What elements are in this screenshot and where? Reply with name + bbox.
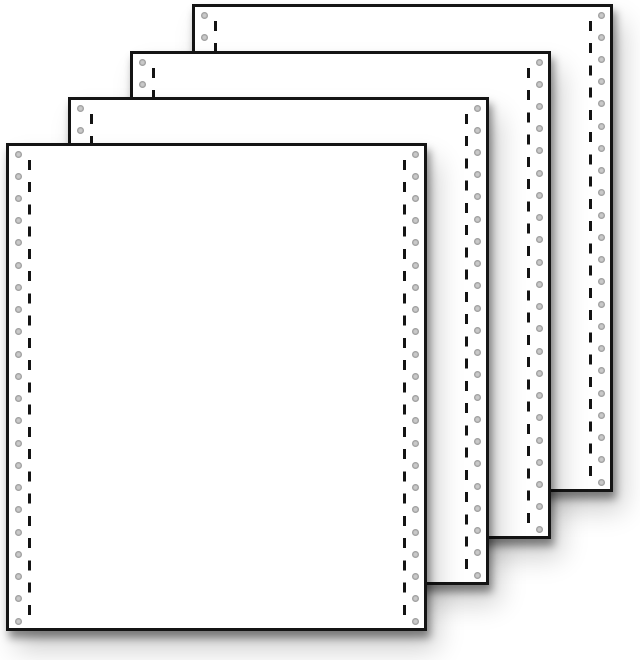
- sprocket-hole: [139, 81, 146, 88]
- sprocket-hole: [598, 167, 605, 174]
- sprocket-hole: [15, 395, 22, 402]
- sprocket-hole: [598, 367, 605, 374]
- sprocket-hole: [536, 125, 543, 132]
- perforation-line: [527, 68, 530, 528]
- sprocket-hole: [412, 217, 419, 224]
- sprocket-hole: [598, 412, 605, 419]
- sprocket-hole: [474, 105, 481, 112]
- sprocket-hole: [474, 505, 481, 512]
- sprocket-hole: [474, 349, 481, 356]
- sprocket-hole: [474, 149, 481, 156]
- sprocket-hole: [536, 370, 543, 377]
- sprocket-hole: [412, 306, 419, 313]
- sprocket-hole: [474, 327, 481, 334]
- perforation-line: [465, 114, 468, 574]
- sprocket-hole: [412, 573, 419, 580]
- sprocket-hole: [536, 147, 543, 154]
- sprocket-hole: [536, 481, 543, 488]
- sprocket-hole: [15, 373, 22, 380]
- paper-stack: [0, 0, 640, 660]
- sprocket-hole: [598, 78, 605, 85]
- sprocket-hole: [15, 306, 22, 313]
- sprocket-hole: [598, 145, 605, 152]
- sprocket-hole: [474, 527, 481, 534]
- sprocket-hole: [598, 278, 605, 285]
- sprocket-hole: [15, 328, 22, 335]
- sprocket-hole: [15, 506, 22, 513]
- sprocket-hole: [15, 262, 22, 269]
- sprocket-hole: [474, 438, 481, 445]
- sprocket-hole: [474, 260, 481, 267]
- sprocket-hole: [139, 59, 146, 66]
- sprocket-hole: [201, 12, 208, 19]
- sprocket-hole: [598, 456, 605, 463]
- sprocket-hole: [15, 239, 22, 246]
- sprocket-hole: [536, 103, 543, 110]
- sprocket-hole: [15, 595, 22, 602]
- sprocket-hole: [536, 414, 543, 421]
- sprocket-hole: [412, 551, 419, 558]
- paper-sheet: [6, 143, 427, 631]
- sprocket-hole: [536, 214, 543, 221]
- perforation-line: [589, 21, 592, 481]
- sprocket-hole: [474, 549, 481, 556]
- sprocket-hole: [536, 348, 543, 355]
- sprocket-hole: [474, 572, 481, 579]
- sprocket-hole: [15, 618, 22, 625]
- sprocket-hole: [412, 284, 419, 291]
- sprocket-hole: [474, 416, 481, 423]
- sprocket-hole: [412, 395, 419, 402]
- sprocket-hole: [536, 459, 543, 466]
- sprocket-hole: [15, 173, 22, 180]
- sprocket-hole: [598, 479, 605, 486]
- sprocket-hole: [536, 81, 543, 88]
- sprocket-hole: [598, 390, 605, 397]
- perforation-line: [28, 160, 31, 620]
- sprocket-hole: [536, 325, 543, 332]
- sprocket-hole: [474, 216, 481, 223]
- sprocket-hole: [15, 151, 22, 158]
- sprocket-hole: [474, 483, 481, 490]
- sprocket-hole: [201, 34, 208, 41]
- sprocket-hole: [536, 281, 543, 288]
- sprocket-hole: [474, 193, 481, 200]
- sprocket-hole: [536, 236, 543, 243]
- sprocket-hole: [412, 239, 419, 246]
- sprocket-hole: [536, 503, 543, 510]
- sprocket-hole: [598, 34, 605, 41]
- sprocket-hole: [412, 529, 419, 536]
- sprocket-hole: [412, 151, 419, 158]
- sprocket-hole: [598, 123, 605, 130]
- sprocket-hole: [15, 195, 22, 202]
- sprocket-hole: [474, 394, 481, 401]
- sprocket-hole: [412, 195, 419, 202]
- sprocket-hole: [412, 618, 419, 625]
- sprocket-hole: [598, 189, 605, 196]
- sprocket-hole: [598, 301, 605, 308]
- sprocket-hole: [536, 526, 543, 533]
- sprocket-hole: [412, 328, 419, 335]
- sprocket-hole: [412, 173, 419, 180]
- sprocket-hole: [598, 256, 605, 263]
- sprocket-hole: [598, 212, 605, 219]
- sprocket-hole: [536, 259, 543, 266]
- sprocket-hole: [412, 462, 419, 469]
- sprocket-hole: [598, 323, 605, 330]
- sprocket-hole: [77, 127, 84, 134]
- sprocket-hole: [15, 529, 22, 536]
- perforation-line: [403, 160, 406, 620]
- sprocket-hole: [474, 460, 481, 467]
- sprocket-hole: [412, 373, 419, 380]
- sprocket-hole: [474, 305, 481, 312]
- sprocket-hole: [412, 484, 419, 491]
- sprocket-hole: [474, 171, 481, 178]
- sprocket-hole: [15, 417, 22, 424]
- sprocket-hole: [474, 371, 481, 378]
- sprocket-hole: [412, 351, 419, 358]
- sprocket-hole: [598, 234, 605, 241]
- sprocket-hole: [474, 282, 481, 289]
- sprocket-hole: [15, 484, 22, 491]
- sprocket-hole: [412, 506, 419, 513]
- sprocket-hole: [412, 262, 419, 269]
- sprocket-hole: [598, 434, 605, 441]
- sprocket-hole: [536, 437, 543, 444]
- sprocket-hole: [412, 440, 419, 447]
- sprocket-hole: [536, 59, 543, 66]
- sprocket-hole: [598, 56, 605, 63]
- sprocket-hole: [598, 100, 605, 107]
- sprocket-hole: [412, 595, 419, 602]
- sprocket-hole: [412, 417, 419, 424]
- sprocket-hole: [536, 170, 543, 177]
- sprocket-hole: [15, 573, 22, 580]
- sprocket-hole: [536, 303, 543, 310]
- sprocket-hole: [598, 12, 605, 19]
- sprocket-hole: [536, 392, 543, 399]
- sprocket-hole: [15, 551, 22, 558]
- sprocket-hole: [474, 127, 481, 134]
- sprocket-hole: [536, 192, 543, 199]
- sprocket-hole: [15, 440, 22, 447]
- sprocket-hole: [15, 217, 22, 224]
- sprocket-hole: [15, 462, 22, 469]
- sprocket-hole: [474, 238, 481, 245]
- sprocket-hole: [598, 345, 605, 352]
- sprocket-hole: [77, 105, 84, 112]
- sprocket-hole: [15, 351, 22, 358]
- sprocket-hole: [15, 284, 22, 291]
